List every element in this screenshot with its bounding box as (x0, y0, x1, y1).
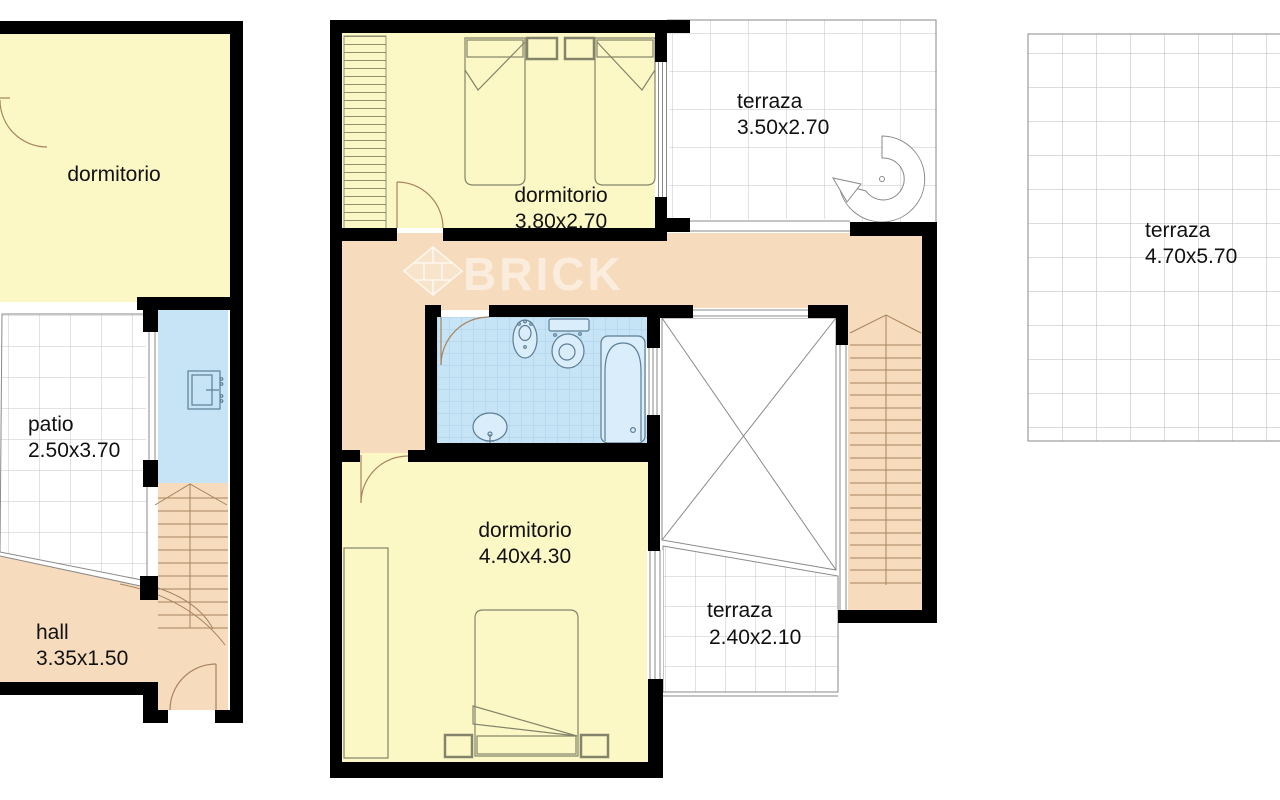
window-dormitorio-top (656, 60, 669, 199)
stairwell-sill (693, 308, 808, 318)
wardrobe-icon-main (344, 548, 388, 758)
right-plan: terraza 4.70x5.70 (1013, 19, 1280, 455)
brand-watermark: BRICK (404, 247, 624, 300)
label-terraza-large-dims: 4.70x5.70 (1145, 245, 1237, 268)
label-hall-dims: 3.35x1.50 (36, 647, 128, 670)
nightstand-icon (581, 735, 608, 757)
label-patio-dims: 2.50x3.70 (28, 439, 120, 462)
label-dormitorio-main: dormitorio (478, 519, 571, 542)
middle-plan: BRICK dormitorio 3.80x2.70 terraza 3.50x… (330, 20, 937, 778)
bed-icon-single-1 (465, 38, 525, 185)
terrace-door-sill (690, 219, 850, 233)
label-patio: patio (28, 413, 74, 436)
laundry-window (146, 332, 157, 460)
label-terraza-large: terraza (1145, 219, 1211, 242)
label-terraza-top-dims: 3.50x2.70 (737, 116, 829, 139)
nightstand-icon (565, 38, 594, 59)
bathtub-icon (601, 336, 645, 443)
window-bathroom (646, 347, 660, 416)
label-dormitorio-top: dormitorio (514, 184, 607, 207)
brand-watermark-text: BRICK (463, 248, 624, 300)
label-dormitorio-main-dims: 4.40x4.30 (479, 545, 571, 568)
label-dormitorio-left: dormitorio (67, 163, 160, 186)
wardrobe-icon-top (344, 36, 386, 229)
label-terraza-top: terraza (737, 90, 803, 113)
label-hall: hall (36, 621, 69, 644)
label-terraza-small: terraza (707, 599, 773, 622)
label-terraza-small-dims: 2.40x2.10 (709, 626, 801, 649)
left-plan: dormitorio patio 2.50x3.70 hall 3.35x1.5… (0, 21, 243, 723)
bed-icon-single-2 (595, 38, 655, 185)
bed-icon-double (473, 610, 578, 756)
room-laundry (158, 310, 228, 483)
floorplan-canvas: dormitorio patio 2.50x3.70 hall 3.35x1.5… (0, 0, 1280, 800)
bidet-icon (513, 320, 537, 358)
window-dormitorio-main (647, 550, 663, 680)
nightstand-icon (527, 38, 557, 59)
room-bathroom (437, 317, 647, 450)
label-dormitorio-top-dims: 3.80x2.70 (515, 210, 607, 233)
nightstand-icon (445, 735, 472, 757)
